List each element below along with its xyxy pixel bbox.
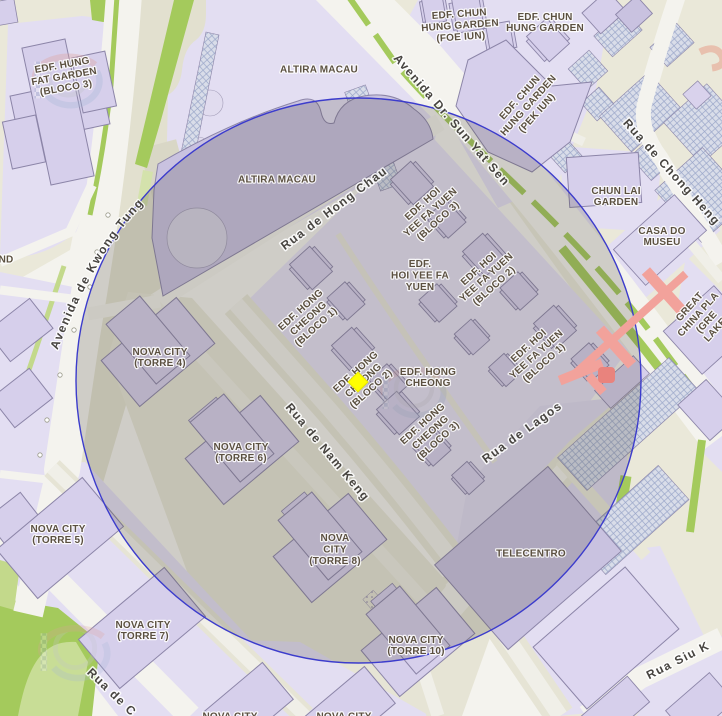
- svg-text:NOVA: NOVA: [321, 533, 350, 544]
- svg-text:HOI YEE FA: HOI YEE FA: [391, 271, 449, 282]
- svg-text:MUSEU: MUSEU: [643, 237, 680, 248]
- svg-text:GARDEN: GARDEN: [594, 197, 639, 208]
- svg-text:CASA DO: CASA DO: [638, 226, 685, 237]
- svg-text:NOVA CITY: NOVA CITY: [316, 712, 371, 716]
- svg-text:HUNG GARDEN: HUNG GARDEN: [506, 23, 584, 34]
- svg-text:(TORRE 10): (TORRE 10): [387, 646, 444, 657]
- svg-text:(TORRE 7): (TORRE 7): [117, 631, 169, 642]
- svg-text:EDF.: EDF.: [409, 259, 431, 270]
- svg-text:TELECENTRO: TELECENTRO: [496, 549, 566, 560]
- svg-text:NOVA CITY: NOVA CITY: [213, 442, 268, 453]
- svg-text:(TORRE 4): (TORRE 4): [134, 358, 186, 369]
- svg-text:(TORRE 8): (TORRE 8): [309, 556, 361, 567]
- svg-text:EDF. HONG: EDF. HONG: [400, 367, 456, 378]
- svg-text:CHUN LAI: CHUN LAI: [591, 186, 640, 197]
- svg-text:NOVA CITY: NOVA CITY: [132, 347, 187, 358]
- svg-text:EDF. CHUN: EDF. CHUN: [517, 12, 572, 23]
- svg-text:ALTIRA MACAU: ALTIRA MACAU: [238, 175, 316, 186]
- svg-text:CHEONG: CHEONG: [405, 378, 450, 389]
- svg-text:NOVA CITY: NOVA CITY: [30, 524, 85, 535]
- svg-text:YUEN: YUEN: [406, 282, 435, 293]
- svg-text:NOVA CITY: NOVA CITY: [202, 712, 257, 716]
- svg-text:ALTIRA MACAU: ALTIRA MACAU: [280, 65, 358, 76]
- svg-text:NOVA CITY: NOVA CITY: [115, 620, 170, 631]
- svg-text:ND: ND: [0, 255, 13, 266]
- svg-text:CITY: CITY: [323, 545, 347, 556]
- svg-text:(TORRE 6): (TORRE 6): [215, 453, 267, 464]
- svg-text:NOVA CITY: NOVA CITY: [388, 635, 443, 646]
- svg-text:(TORRE 5): (TORRE 5): [32, 535, 84, 546]
